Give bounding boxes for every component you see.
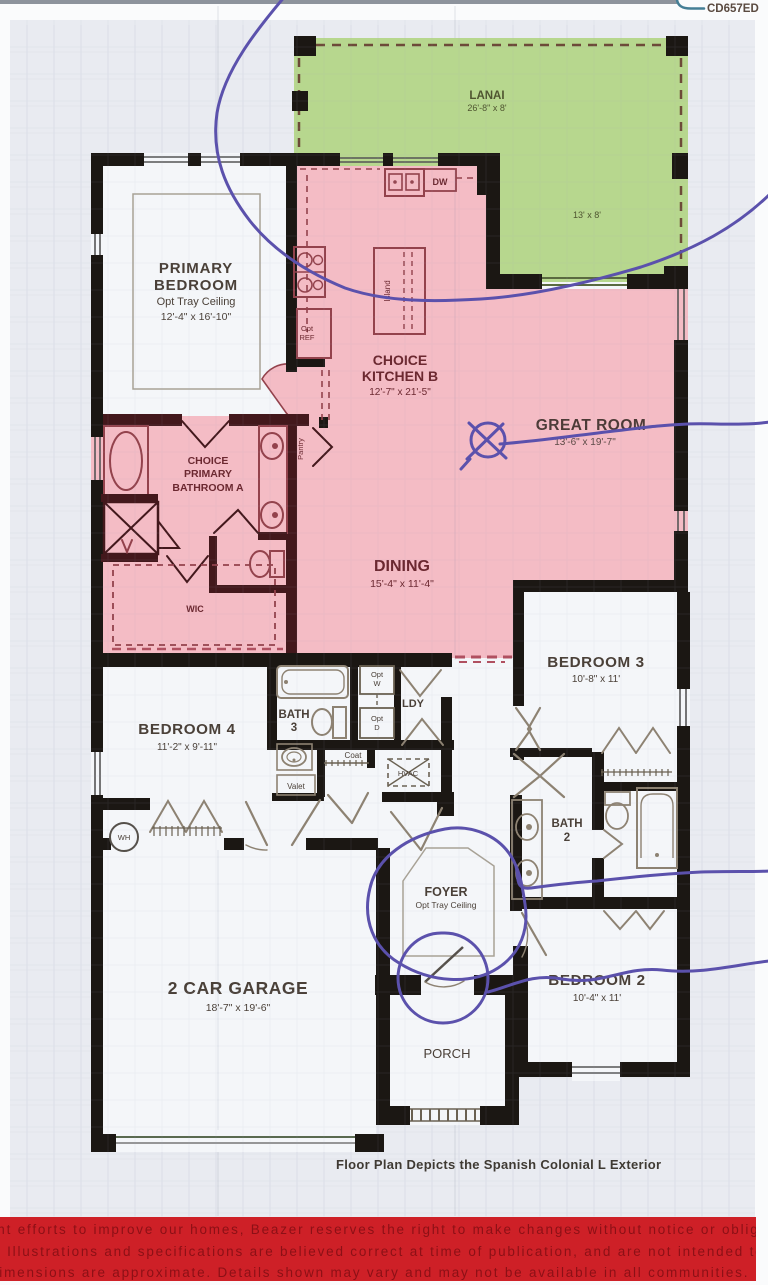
svg-text:CD657ED: CD657ED: [707, 3, 759, 15]
svg-text:W: W: [373, 679, 381, 688]
svg-text:Opt: Opt: [301, 324, 314, 333]
svg-text:FOYER: FOYER: [424, 885, 467, 899]
svg-text:HVAC: HVAC: [398, 769, 419, 778]
svg-text:D: D: [374, 723, 380, 732]
svg-text:BEDROOM 4: BEDROOM 4: [138, 721, 235, 738]
svg-text:Opt Tray Ceiling: Opt Tray Ceiling: [157, 296, 236, 308]
svg-text:DINING: DINING: [374, 558, 430, 575]
svg-text:11'-2" x 9'-11": 11'-2" x 9'-11": [157, 742, 217, 753]
svg-text:18'-7" x 19'-6": 18'-7" x 19'-6": [206, 1002, 271, 1014]
svg-text:13' x 8': 13' x 8': [573, 210, 601, 220]
svg-text:BEDROOM: BEDROOM: [154, 277, 238, 294]
svg-text:REF: REF: [300, 333, 315, 342]
svg-text:CHOICE: CHOICE: [188, 455, 229, 467]
svg-text:Coat: Coat: [345, 751, 363, 760]
svg-text:3: 3: [291, 722, 297, 734]
svg-text:WH: WH: [118, 833, 131, 842]
svg-text:10'-4" x 11': 10'-4" x 11': [573, 993, 621, 1004]
svg-text:26'-8" x 8': 26'-8" x 8': [467, 103, 506, 113]
svg-text:15'-4" x 11'-4": 15'-4" x 11'-4": [370, 578, 434, 590]
svg-text:BATHROOM A: BATHROOM A: [172, 482, 244, 494]
svg-text:Valet: Valet: [287, 782, 305, 791]
svg-text:KITCHEN B: KITCHEN B: [362, 368, 438, 384]
svg-text:Opt: Opt: [371, 670, 384, 679]
svg-text:PRIMARY: PRIMARY: [184, 468, 232, 480]
svg-text:BATH: BATH: [278, 709, 309, 721]
svg-text:PORCH: PORCH: [424, 1046, 471, 1061]
svg-text:Floor Plan Depicts the Spanish: Floor Plan Depicts the Spanish Colonial …: [336, 1157, 661, 1172]
svg-text:LANAI: LANAI: [469, 90, 504, 102]
svg-text:ent efforts to improve our hom: ent efforts to improve our homes, Beazer…: [0, 1222, 768, 1237]
svg-text:Opt Tray Ceiling: Opt Tray Ceiling: [416, 900, 477, 910]
svg-text:CHOICE: CHOICE: [373, 352, 427, 368]
svg-text:dimensions are approximate. De: dimensions are approximate. Details show…: [0, 1265, 749, 1280]
svg-text:10'-8" x 11': 10'-8" x 11': [572, 674, 620, 685]
svg-text:12'-7" x 21'-5": 12'-7" x 21'-5": [369, 387, 431, 398]
svg-text:. Illustrations and specificat: . Illustrations and specifications are b…: [0, 1244, 765, 1259]
